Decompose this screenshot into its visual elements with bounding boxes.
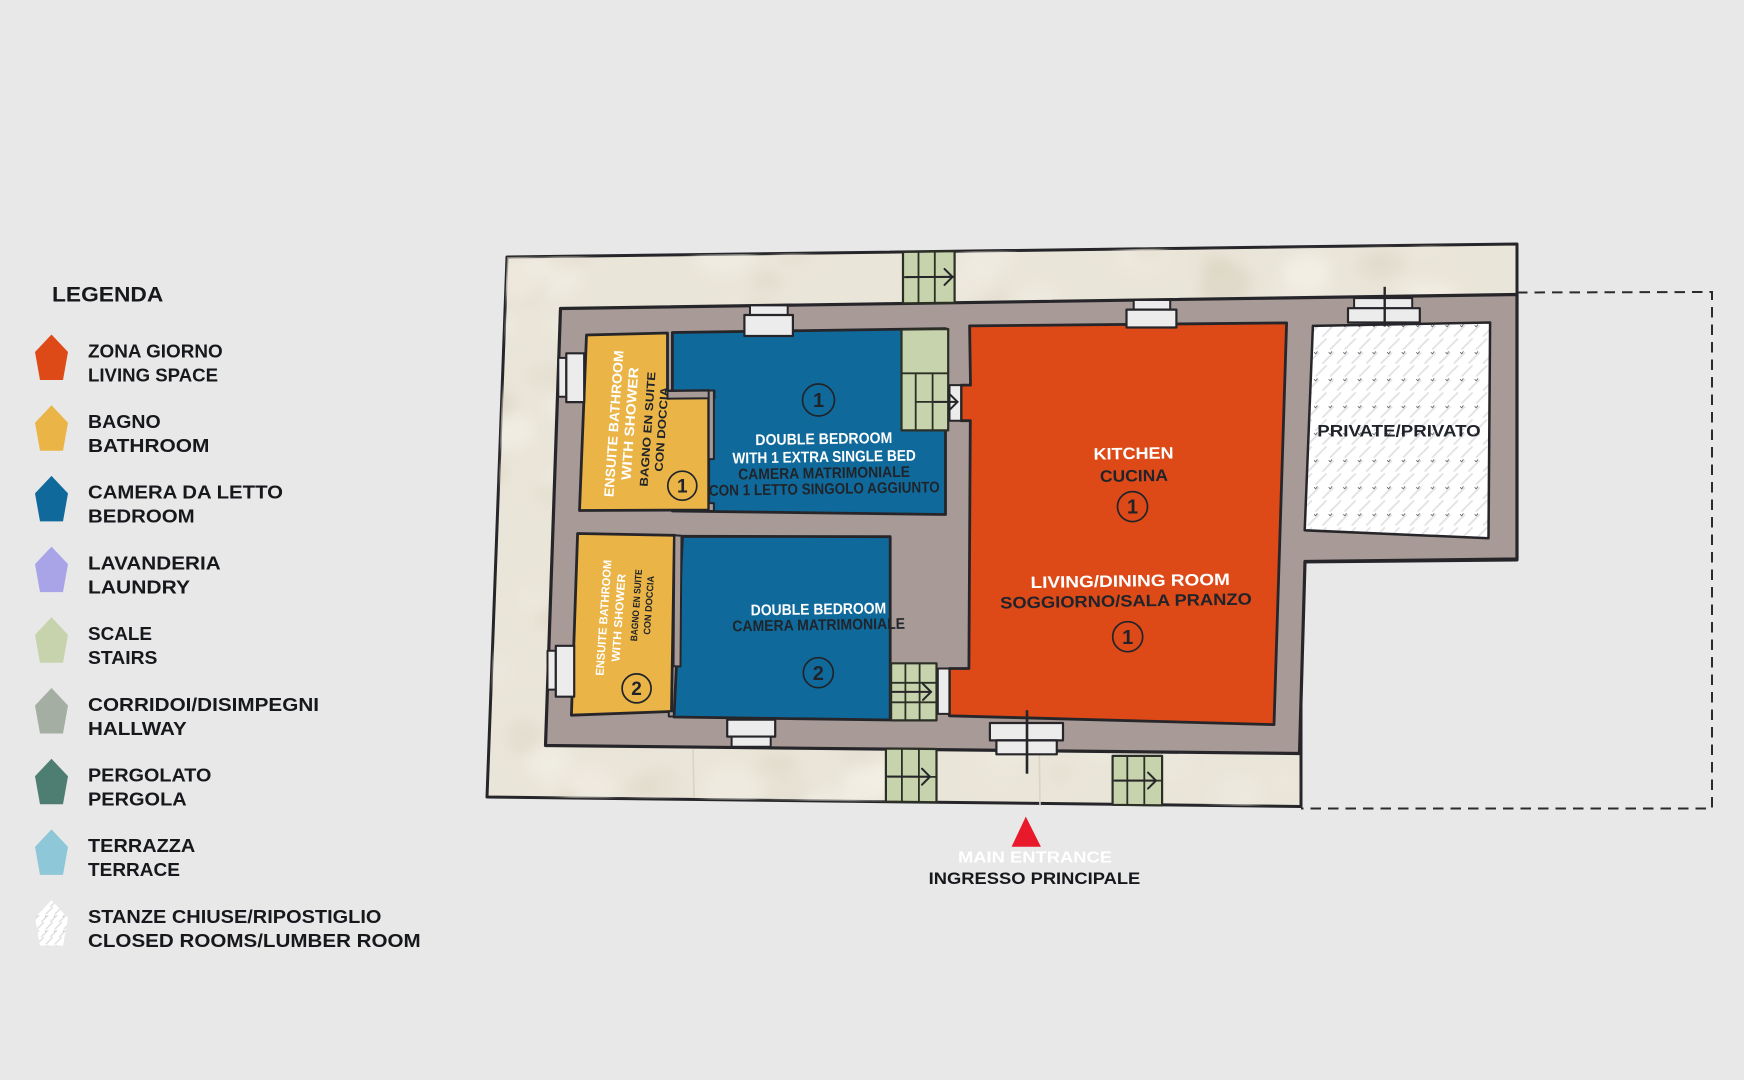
svg-text:HALLWAY: HALLWAY bbox=[88, 719, 187, 739]
svg-text:PERGOLATO: PERGOLATO bbox=[88, 766, 211, 786]
svg-text:CUCINA: CUCINA bbox=[1100, 467, 1168, 486]
svg-text:CON 1 LETTO SINGOLO AGGIUNTO: CON 1 LETTO SINGOLO AGGIUNTO bbox=[709, 479, 940, 500]
svg-text:TERRACE: TERRACE bbox=[88, 860, 180, 880]
svg-text:LIVING SPACE: LIVING SPACE bbox=[88, 365, 218, 385]
svg-text:CAMERA DA LETTO: CAMERA DA LETTO bbox=[88, 483, 283, 503]
svg-text:CORRIDOI/DISIMPEGNI: CORRIDOI/DISIMPEGNI bbox=[88, 695, 319, 715]
svg-text:2: 2 bbox=[631, 679, 642, 700]
svg-text:KITCHEN: KITCHEN bbox=[1093, 444, 1173, 463]
svg-text:PRIVATE/PRIVATO: PRIVATE/PRIVATO bbox=[1317, 421, 1480, 440]
svg-text:DOUBLE BEDROOM: DOUBLE BEDROOM bbox=[755, 430, 892, 449]
svg-text:PERGOLA: PERGOLA bbox=[88, 790, 187, 810]
svg-text:STAIRS: STAIRS bbox=[88, 648, 157, 668]
svg-text:MAIN ENTRANCE: MAIN ENTRANCE bbox=[958, 849, 1112, 866]
svg-text:CLOSED ROOMS/LUMBER ROOM: CLOSED ROOMS/LUMBER ROOM bbox=[88, 931, 421, 951]
svg-text:LAVANDERIA: LAVANDERIA bbox=[88, 553, 221, 573]
svg-text:BEDROOM: BEDROOM bbox=[88, 507, 195, 527]
svg-text:INGRESSO PRINCIPALE: INGRESSO PRINCIPALE bbox=[929, 870, 1141, 888]
svg-text:LIVING/DINING ROOM: LIVING/DINING ROOM bbox=[1030, 571, 1230, 592]
svg-text:TERRAZZA: TERRAZZA bbox=[88, 836, 195, 856]
svg-text:LAUNDRY: LAUNDRY bbox=[88, 577, 190, 597]
svg-text:STANZE CHIUSE/RIPOSTIGLIO: STANZE CHIUSE/RIPOSTIGLIO bbox=[88, 907, 381, 927]
svg-text:LEGENDA: LEGENDA bbox=[52, 282, 163, 306]
svg-text:SCALE: SCALE bbox=[88, 624, 152, 644]
svg-text:1: 1 bbox=[813, 390, 824, 412]
svg-text:ZONA GIORNO: ZONA GIORNO bbox=[88, 341, 223, 361]
svg-text:1: 1 bbox=[677, 476, 688, 497]
svg-text:1: 1 bbox=[1127, 497, 1138, 519]
svg-text:BAGNO: BAGNO bbox=[88, 412, 161, 432]
svg-text:BATHROOM: BATHROOM bbox=[88, 436, 209, 456]
svg-text:CAMERA MATRIMONIALE: CAMERA MATRIMONIALE bbox=[732, 616, 905, 636]
svg-text:1: 1 bbox=[1122, 627, 1133, 649]
svg-text:2: 2 bbox=[813, 663, 824, 685]
